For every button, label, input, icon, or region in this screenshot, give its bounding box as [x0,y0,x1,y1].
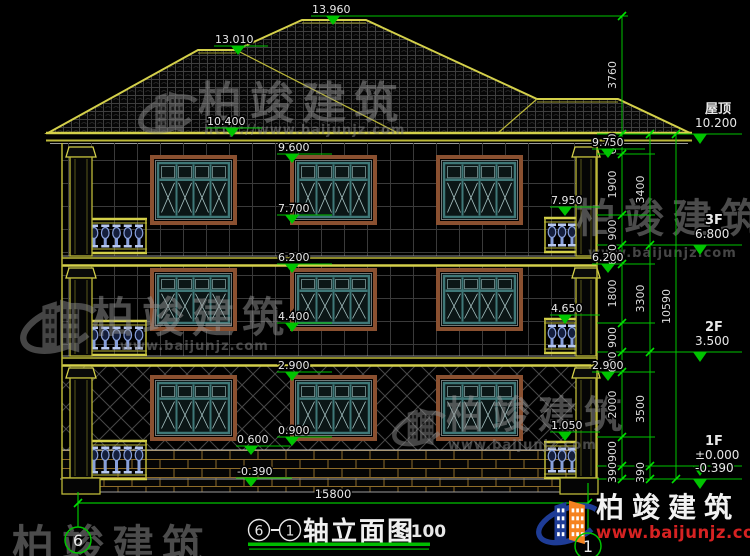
baluster-base [558,470,566,473]
dim-chain-label: 900 [606,220,619,241]
pilaster-shaft [70,378,92,478]
logo-window-dot [69,309,72,314]
baluster-base [548,345,556,348]
baluster-base [558,244,566,247]
baluster-body [124,228,132,239]
dim-chain-label: 10590 [660,289,673,324]
dim-chain-label: 900 [606,441,619,462]
logo-window-dot [422,435,424,438]
baluster-body [124,450,132,461]
logo-window-dot [557,524,560,528]
logo-window-dot [74,319,77,324]
elevation-marker-value: 6.200 [278,251,310,264]
logo-window-dot [557,516,560,520]
elevation-marker-value: 2.900 [592,359,624,372]
watermark: 柏竣建筑 [12,521,212,556]
baluster-stem [571,461,574,470]
logo-window-dot [74,338,77,343]
logo-window-dot [63,309,66,314]
dim-chain-label: 2000 [606,391,619,419]
baluster-stem [138,238,141,245]
baluster-cap [568,224,576,227]
baluster-cap [558,325,566,328]
baluster-cap [568,325,576,328]
elevation-marker-value: 6.200 [592,251,624,264]
brand-name: 柏竣建筑 [596,491,740,524]
elevation-marker-value: -0.390 [237,465,272,478]
baluster-stem [126,460,129,471]
baluster-stem [551,237,554,244]
elevation-marker-value: 0.600 [237,433,269,446]
logo-window-dot [176,107,178,111]
logo-window-dot [162,99,164,103]
baluster-base [558,345,566,348]
watermark-url: www.baijunjz.com [120,339,269,354]
logo-window-dot [158,121,160,125]
logo-window-dot [576,524,579,528]
baluster-cap [548,325,556,328]
baluster-base [113,471,121,474]
window [152,377,235,439]
baluster-base [568,345,576,348]
baluster-base [101,347,109,350]
title-axis-end-label: 1 [286,524,295,540]
elevation-marker-value: 13.960 [312,3,351,16]
window [438,157,521,223]
logo-window-dot [74,309,77,314]
logo-window-dot [180,121,182,125]
floor-level-value: 10.200 [695,116,737,130]
logo-window-dot [162,114,164,118]
baluster-base [113,245,121,248]
logo-window-dot [426,435,428,438]
baluster-stem [126,238,129,245]
baluster-base [568,470,576,473]
baluster-cap [124,447,132,450]
baluster-stem [561,461,564,470]
logo-window-dot [69,328,72,333]
baluster-cap [558,224,566,227]
pilaster-base [560,478,598,494]
grid-bubble-6-label: 6 [73,531,83,550]
baluster-body [568,328,576,339]
dim-chain-label: 900 [606,327,619,348]
window [438,270,521,329]
logo-window-dot [572,524,575,528]
logo-window-dot [69,338,72,343]
logo-window-dot [426,428,428,431]
floor-level-name: 屋顶 [705,102,731,117]
baluster-stem [104,460,107,471]
brand-url: www.baijunjz.com [596,523,750,542]
logo-window-dot [422,422,424,425]
watermark-text: 柏竣建筑 [12,521,212,556]
dim-chain-label: 3300 [634,285,647,313]
baluster-stem [561,338,564,345]
logo-window-dot [572,532,575,536]
baluster-cap [124,225,132,228]
title-underline-thin [249,549,429,550]
elevation-drawing: 柏竣建筑http://www.baijunjz.com柏竣建筑www.baiju… [0,0,750,556]
baluster-cap [548,224,556,227]
logo-window-dot [162,107,164,111]
pilaster-capital [572,268,600,278]
logo-window-dot [426,422,428,425]
logo-window-dot [557,508,560,512]
dim-chain-label: 3760 [606,61,619,89]
logo-window-dot [51,309,54,314]
baluster-stem [104,238,107,245]
logo-window-dot [414,415,416,418]
baluster-base [124,471,132,474]
elevation-marker-value: 0.900 [278,424,310,437]
elevation-marker-value: 7.700 [278,202,310,215]
watermark-text: 柏竣建筑 [446,393,630,437]
logo-window-dot [51,338,54,343]
dim-chain-label: 390 [606,462,619,483]
baluster-body [568,227,576,238]
dim-chain-label: 3500 [634,395,647,423]
baluster-body [135,450,143,461]
logo-window-dot [581,508,584,512]
baluster-stem [551,461,554,470]
logo-window-dot [171,121,173,125]
logo-window-dot [562,508,565,512]
elevation-marker-value: 9.600 [278,141,310,154]
baluster-body [101,228,109,239]
logo-tower-left [554,502,566,543]
logo-window-dot [576,532,579,536]
logo-window-dot [557,532,560,536]
floor-level-name: 1F [705,434,723,449]
logo-window-dot [180,99,182,103]
logo-window-dot [162,121,164,125]
logo-window-dot [414,435,416,438]
baluster-stem [93,460,96,471]
floor-level-value: -0.390 [695,461,734,475]
elevation-marker-value: 9.750 [592,136,624,149]
title-underline-thick [248,543,430,547]
baluster-base [548,244,556,247]
watermark-url: www.baijunjz.com [448,438,597,453]
elevation-marker-value: 1.050 [551,419,583,432]
baluster-base [135,471,143,474]
baluster-base [101,245,109,248]
logo-window-dot [158,107,160,111]
pilaster-capital [66,147,96,157]
logo-window-dot [46,319,49,324]
logo-window-dot [158,99,160,103]
window [152,157,235,223]
logo-window-dot [430,435,432,438]
baluster-stem [551,338,554,345]
logo-window-dot [46,309,49,314]
logo-window-dot [576,516,579,520]
elevation-marker-value: 4.400 [278,310,310,323]
logo-window-dot [422,415,424,418]
elevation-marker-value: 10.400 [207,115,246,128]
title-axis-start-label: 6 [255,524,264,540]
logo-window-dot [46,338,49,343]
logo-window-dot [69,319,72,324]
baluster-base [548,470,556,473]
baluster-body [548,227,556,238]
logo-tower-right [169,92,184,133]
logo-window-dot [414,422,416,425]
logo-window-dot [74,328,77,333]
logo-tower-right [420,408,433,445]
pilaster-shaft [70,157,92,256]
baluster-body [558,227,566,238]
elevation-marker-value: 13.010 [215,33,254,46]
baluster-base [568,244,576,247]
baluster-cap [135,447,143,450]
logo-window-dot [176,99,178,103]
pilaster-base [62,478,100,494]
logo-window-dot [422,428,424,431]
logo-window-dot [572,516,575,520]
elevation-marker-value: 2.900 [278,359,310,372]
grid-bubble-1-label: 1 [583,537,593,556]
logo-window-dot [180,114,182,118]
baluster-cap [101,225,109,228]
baluster-stem [561,237,564,244]
logo-window-dot [562,532,565,536]
floor-level-name: 2F [705,320,723,335]
baluster-stem [93,238,96,245]
baluster-stem [138,460,141,471]
baluster-cap [135,225,143,228]
baluster-body [101,450,109,461]
logo-window-dot [171,107,173,111]
logo-window-dot [63,328,66,333]
watermark-text: 柏竣建筑 [92,293,292,342]
logo-tower-left [155,93,166,131]
logo-window-dot [562,524,565,528]
baluster-cap [101,447,109,450]
baluster-body [135,228,143,239]
pilaster-capital [66,368,96,378]
cad-canvas: 柏竣建筑http://www.baijunjz.com柏竣建筑www.baiju… [0,0,750,556]
overall-dimension-label: 15800 [315,487,352,501]
logo-window-dot [430,428,432,431]
dim-chain-label: 1900 [606,171,619,199]
dim-chain-label: 1800 [606,280,619,308]
floor-level-name: 3F [705,213,723,228]
logo-window-dot [410,428,412,431]
logo-window-dot [572,508,575,512]
baluster-cap [113,447,121,450]
logo-window-dot [430,415,432,418]
logo-window-dot [410,422,412,425]
baluster-base [135,245,143,248]
logo-tower-left [408,409,418,444]
baluster-stem [571,237,574,244]
logo-window-dot [176,114,178,118]
logo-window-dot [410,435,412,438]
logo-window-dot [46,328,49,333]
floor-level-value: ±0.000 [695,448,739,462]
pilaster-capital [66,268,96,278]
floor-level-value: 3.500 [695,334,729,348]
logo-window-dot [581,524,584,528]
logo-window-dot [562,516,565,520]
logo-window-dot [63,319,66,324]
elevation-marker-value: 7.950 [551,194,583,207]
elevation-marker-value: 4.650 [551,302,583,315]
baluster-body [558,328,566,339]
pilaster-shaft [576,278,596,356]
logo-window-dot [426,415,428,418]
baluster-base [101,471,109,474]
baluster-stem [115,238,118,245]
logo-window-dot [171,99,173,103]
baluster-cap [113,225,121,228]
dim-chain-label: 390 [634,462,647,483]
baluster-stem [571,338,574,345]
logo-window-dot [176,121,178,125]
logo-tower-right [60,300,79,353]
logo-window-dot [414,428,416,431]
logo-window-dot [581,516,584,520]
logo-window-dot [51,328,54,333]
logo-window-dot [171,114,173,118]
balcony-railing [86,441,147,479]
logo-window-dot [180,107,182,111]
drawing-scale: 1:100 [392,522,446,542]
baluster-stem [115,460,118,471]
logo-window-dot [576,508,579,512]
logo-tower-left [42,301,56,351]
baluster-body [113,450,121,461]
floor-level-value: 6.800 [695,227,729,241]
baluster-body [548,328,556,339]
baluster-body [113,228,121,239]
dim-chain-label: 3400 [634,176,647,204]
logo-window-dot [63,338,66,343]
logo-window-dot [158,114,160,118]
logo-window-dot [51,319,54,324]
logo-window-dot [410,415,412,418]
baluster-base [124,245,132,248]
logo-window-dot [430,422,432,425]
